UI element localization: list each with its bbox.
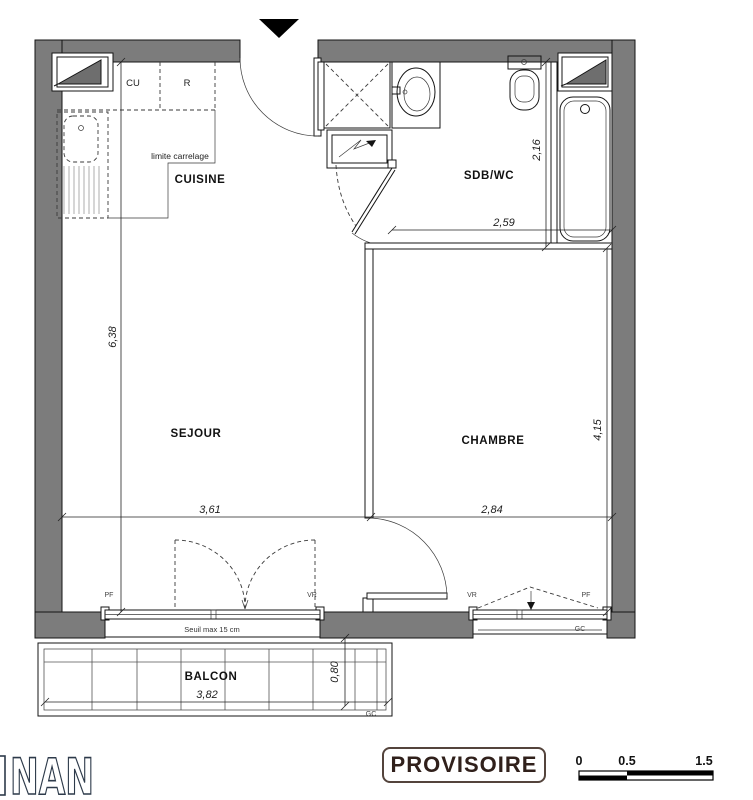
entrance-door: [240, 58, 321, 136]
stamp-text: PROVISOIRE: [391, 752, 538, 777]
dim-sejour-width: 3,61: [199, 504, 220, 516]
drainer-hatch: [64, 166, 99, 214]
bathroom-chambre-wall: [365, 243, 612, 249]
scale-tick-05: 0.5: [618, 754, 635, 768]
tiling-limit-line: [108, 110, 215, 218]
window-sill: [473, 619, 607, 634]
sejour-chambre-wall: [365, 249, 373, 518]
interior-partitions: [363, 243, 612, 612]
chambre-door: [367, 518, 447, 599]
dim-balcon-depth: 0,80: [329, 660, 341, 682]
room-label-sdb-wc: SDB/WC: [464, 170, 514, 182]
washbasin: [392, 62, 440, 128]
shower-wall: [318, 62, 324, 130]
bathtub: [560, 97, 610, 241]
water-heater: [327, 130, 392, 168]
kitchen-unit: [57, 112, 108, 218]
floor-plan-drawing: CU R limite carrelage CUISINE SEJOUR CHA…: [0, 0, 753, 800]
floor-plan-page: CU R limite carrelage CUISINE SEJOUR CHA…: [0, 0, 753, 800]
footer: NAN PROVISOIRE 0 0.5 1.5: [0, 748, 713, 800]
kitchen-r-label: R: [184, 78, 191, 89]
bathroom-door-leaf: [352, 168, 392, 232]
door-leaf: [367, 593, 447, 599]
dim-balcon-width: 3,82: [196, 689, 217, 701]
room-label-balcon: BALCON: [185, 671, 238, 683]
chambre-gc-label: GC: [575, 626, 586, 633]
balcon-gc-label: GC: [366, 711, 377, 718]
kitchen-cu-label: CU: [126, 78, 140, 89]
chambre-vr-label: VR: [467, 592, 477, 599]
kitchen-sink: [64, 116, 98, 162]
kitchen-window: [52, 53, 113, 91]
room-label-chambre: CHAMBRE: [462, 435, 525, 447]
logo: NAN: [0, 748, 94, 800]
room-label-cuisine: CUISINE: [175, 174, 226, 186]
tiling-limit-label: limite carrelage: [151, 151, 209, 161]
door-swing-arc: [240, 58, 318, 136]
dim-sdb-height: 2,16: [531, 138, 543, 161]
bathtub-partition-wall: [551, 62, 557, 247]
toilet: [508, 56, 541, 110]
bathroom-door-jamb: [388, 160, 396, 168]
water-heater-arrow: [339, 140, 372, 157]
threshold-label: Seuil max 15 cm: [184, 625, 239, 634]
logo-text: NAN: [10, 748, 94, 800]
dim-sdb-width: 2,59: [492, 217, 514, 229]
sejour-french-doors: [101, 540, 324, 637]
chambre-pf-label: PF: [582, 592, 591, 599]
sejour-vr-label: VR: [307, 592, 317, 599]
dim-chambre-width: 2,84: [480, 504, 502, 516]
bathroom-window: [558, 53, 612, 91]
scale-tick-15: 1.5: [695, 754, 712, 768]
sejour-pf-label: PF: [105, 592, 114, 599]
sink-faucet: [79, 126, 84, 131]
dim-sejour-height: 6,38: [107, 325, 119, 347]
dim-chambre-height: 4,15: [592, 418, 604, 440]
scale-bar: 0 0.5 1.5: [576, 754, 713, 780]
room-label-sejour: SEJOUR: [171, 428, 222, 440]
entrance-marker-triangle: [259, 19, 299, 38]
door-stub-wall: [363, 598, 373, 612]
provisoire-stamp: PROVISOIRE: [383, 748, 545, 782]
door-swing-arc: [371, 518, 447, 596]
scale-tick-0: 0: [576, 754, 583, 768]
